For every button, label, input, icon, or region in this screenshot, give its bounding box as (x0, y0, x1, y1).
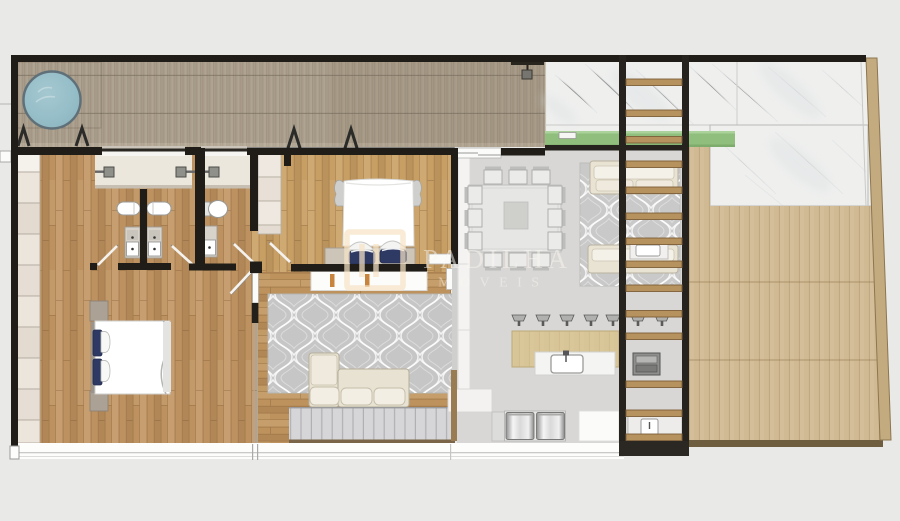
svg-text:IMÓVEIS: IMÓVEIS (424, 274, 546, 291)
svg-text:PADILHA: PADILHA (423, 244, 569, 274)
